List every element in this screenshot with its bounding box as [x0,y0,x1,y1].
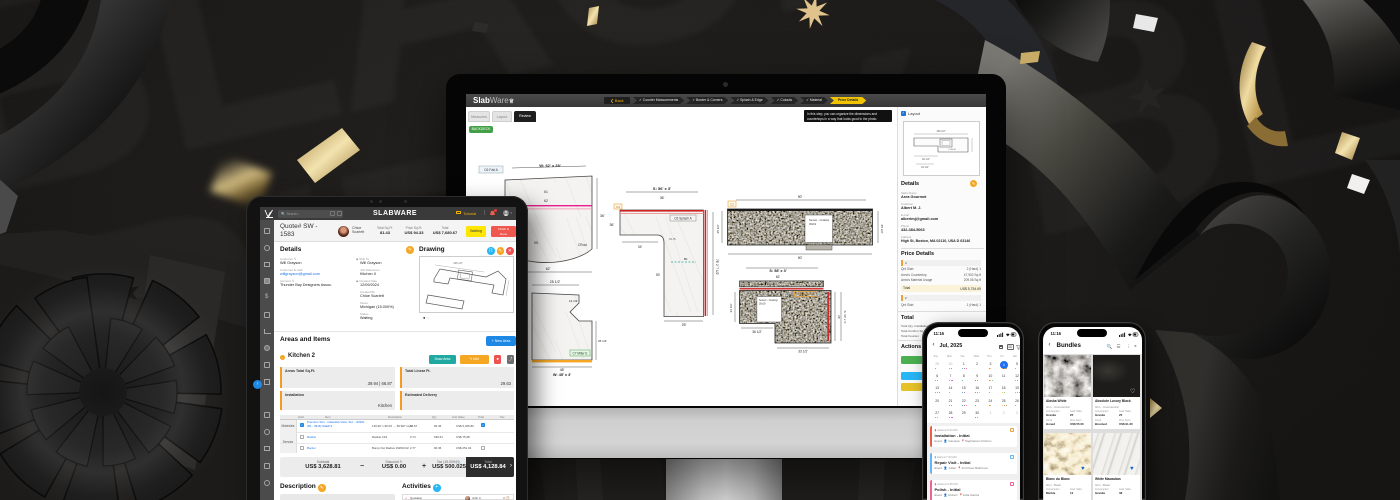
svg-text:C 30x19: C 30x19 [948,149,956,151]
svg-text:62 1/2": 62 1/2" [922,158,930,161]
svg-text:95: 95 [534,241,538,245]
svg-text:CRout: CRout [578,243,587,247]
svg-text:33 1/2': 33 1/2' [798,350,808,354]
svg-text:50': 50' [656,273,661,277]
svg-text:W: 45' x 3': W: 45' x 3' [553,373,571,377]
svg-text:30x19: 30x19 [759,303,766,306]
svg-text:90': 90' [798,256,803,260]
svg-text:25 1/2': 25 1/2' [598,339,607,343]
svg-text:61: 61 [544,190,548,194]
svg-text:C7 Miter E: C7 Miter E [572,352,587,356]
svg-text:48': 48' [560,368,565,372]
svg-text:S: 56' x 3': S: 56' x 3' [653,186,671,191]
svg-text:S: 34' x 3': S: 34' x 3' [843,311,847,324]
svg-text:136 1/2": 136 1/2" [453,261,463,265]
svg-text:14 1/2': 14 1/2' [569,299,578,303]
svg-text:C6 Splash A: C6 Splash A [674,217,692,221]
svg-text:Sensor - Cooktop: Sensor - Cooktop [809,218,830,222]
svg-text:62': 62' [546,267,551,271]
svg-text:CL B: CL B [669,237,676,241]
svg-text:36': 36' [660,196,665,200]
svg-text:36': 36' [837,315,841,319]
svg-text:B1: B1 [748,309,752,313]
svg-text:25 1/2': 25 1/2' [716,224,720,233]
svg-text:24 1/2": 24 1/2" [921,166,929,169]
svg-text:62': 62' [776,275,781,279]
svg-text:25 1/2': 25 1/2' [880,225,884,234]
svg-text:C2: C2 [730,203,734,207]
svg-text:C6 Fail A: C6 Fail A [484,168,498,172]
svg-text:C4: C4 [616,205,620,209]
svg-text:36': 36' [600,214,605,218]
svg-text:90': 90' [798,195,803,199]
svg-text:B2: B2 [786,309,790,313]
svg-text:B3: B3 [796,331,800,335]
svg-text:W: 62' x 28': W: 62' x 28' [539,163,560,168]
svg-text:12 7/8': 12 7/8' [780,329,784,338]
svg-text:B1: B1 [684,257,688,261]
svg-text:76' 2' 7 1/2': 76' 2' 7 1/2' [715,259,719,275]
svg-text:36': 36' [609,223,614,227]
svg-text:33 1/2': 33 1/2' [729,303,733,312]
svg-text:36 1/2': 36 1/2' [752,330,762,334]
svg-text:25': 25' [682,323,687,327]
svg-text:34': 34' [638,245,643,249]
svg-text:C5 Splash A: C5 Splash A [798,292,815,296]
svg-text:25 1/2': 25 1/2' [550,280,561,284]
svg-text:62: 62 [544,199,548,203]
svg-text:136 1/2": 136 1/2" [936,130,945,133]
svg-text:S: 58' x 3': S: 58' x 3' [769,269,786,273]
svg-text:30x19: 30x19 [809,222,817,226]
